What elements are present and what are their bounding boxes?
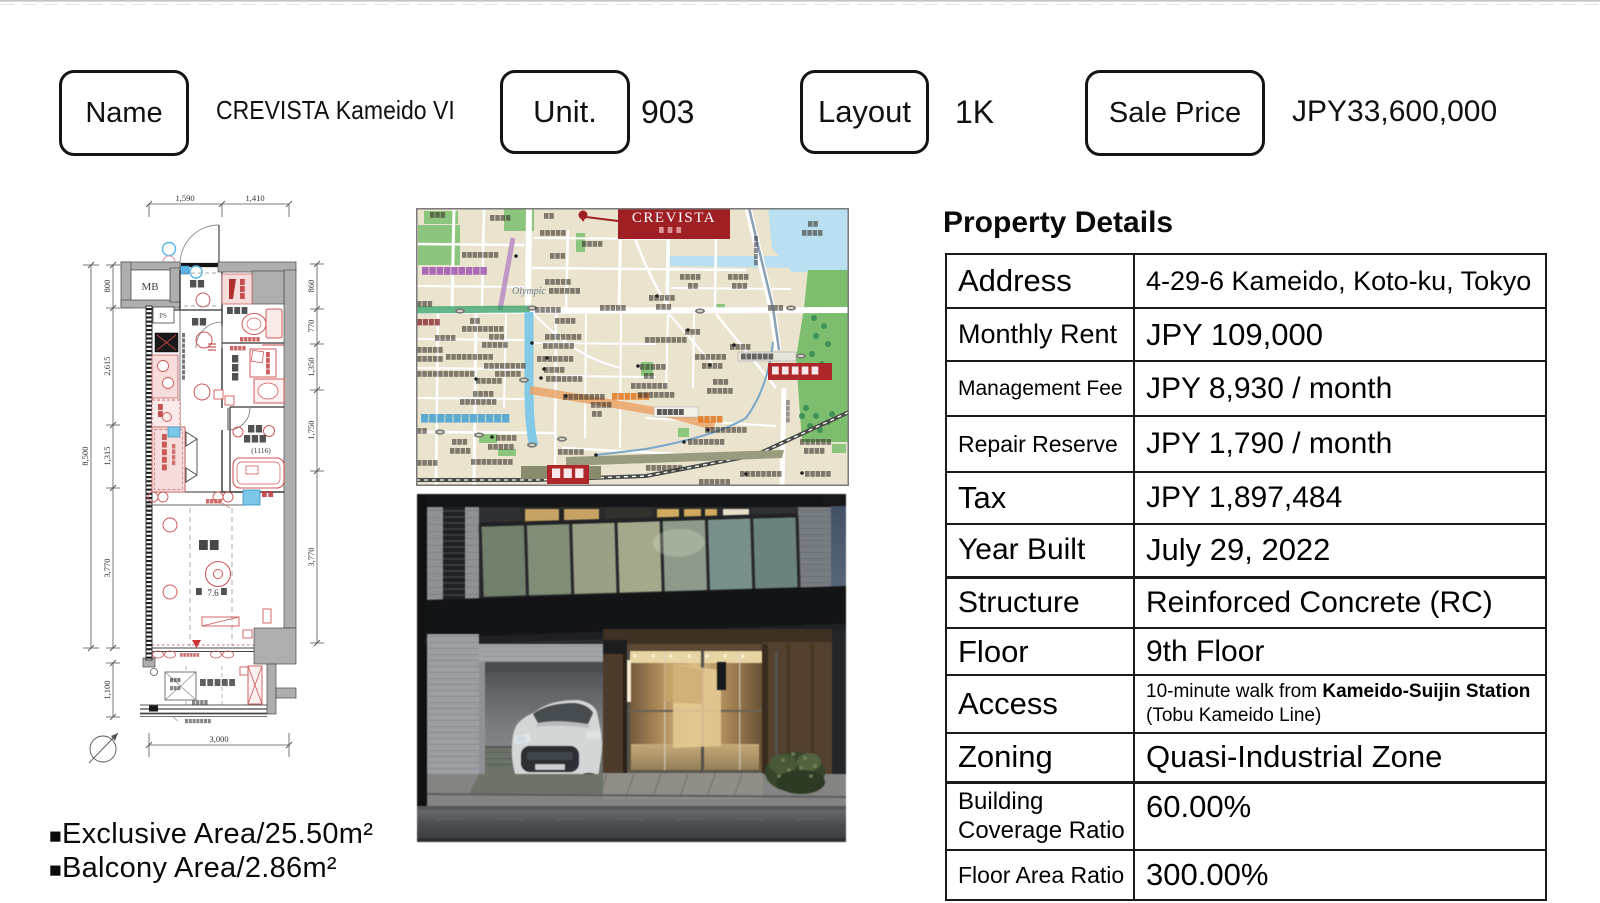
svg-text:3,770: 3,770 [102,558,112,577]
svg-text:1,315: 1,315 [102,446,112,465]
svg-text:1,750: 1,750 [306,420,316,439]
svg-text:1,590: 1,590 [175,193,194,203]
svg-text:1,100: 1,100 [102,680,112,699]
svg-text:CREVISTA: CREVISTA [632,210,716,226]
svg-text:1,350: 1,350 [306,357,316,376]
svg-text:Olympic: Olympic [512,286,546,297]
svg-text:3,000: 3,000 [209,734,228,744]
svg-text:(1116): (1116) [251,446,271,455]
svg-text:3,770: 3,770 [306,547,316,566]
svg-text:8,500: 8,500 [80,446,90,465]
svg-text:800: 800 [102,280,112,293]
svg-text:860: 860 [306,280,316,293]
svg-text:PS: PS [159,312,167,320]
svg-text:770: 770 [306,320,316,333]
svg-text:1,410: 1,410 [245,193,264,203]
svg-text:7.6: 7.6 [207,588,219,598]
svg-text:MB: MB [141,281,158,293]
svg-text:2,615: 2,615 [102,356,112,375]
